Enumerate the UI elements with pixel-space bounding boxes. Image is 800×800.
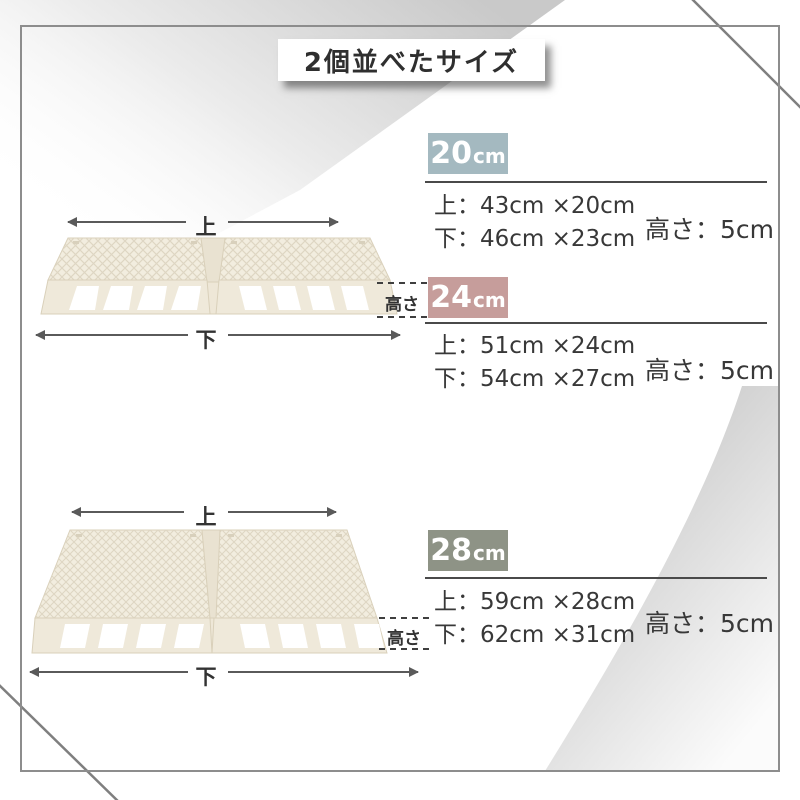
size-chip-20cm-unit: cm [473,136,506,177]
section-20cm-divider [425,181,767,183]
productA-height-label: 高さ [377,290,427,315]
size-chip-28cm-number: 28 [430,530,472,571]
section-28cm-dimensions: 上：59cm ×28cm 下：62cm ×31cm [434,586,635,652]
productB-bottom-arrow-right [228,671,418,673]
productA-height-dash-top [377,282,427,284]
productB-top-arrow-left [72,511,184,513]
size-chip-24cm-number: 24 [430,277,472,318]
section-24cm-bottom-dimension: 下：54cm ×27cm [434,363,635,396]
size-chip-20cm: 20cm [428,133,508,174]
productA-height-dash-bottom [377,316,427,318]
section-24cm-top-dimension: 上：51cm ×24cm [434,330,635,363]
productB-image [30,522,415,662]
productA-top-arrow-left [68,221,186,223]
section-24cm-dimensions: 上：51cm ×24cm 下：54cm ×27cm [434,330,635,396]
productB-height-label: 高さ [379,624,429,649]
section-20cm-height: 高さ：5cm [645,210,774,246]
section-24cm-divider [425,322,767,324]
section-28cm-bottom-dimension: 下：62cm ×31cm [434,619,635,652]
size-chip-24cm: 24cm [428,277,508,318]
productB-bottom-label: 下 [188,661,224,691]
productB-height-dash-top [379,617,429,619]
size-chip-28cm-unit: cm [473,533,506,574]
productB-height-dash-bottom [379,648,429,650]
page-title-text: 2個並べたサイズ [304,42,519,79]
section-28cm-top-dimension: 上：59cm ×28cm [434,586,635,619]
size-chip-28cm: 28cm [428,530,508,571]
productA-bottom-label: 下 [188,324,224,354]
productA-bottom-arrow-right [228,334,400,336]
section-28cm-height: 高さ：5cm [645,604,774,640]
productB-top-arrow-right [228,511,336,513]
section-28cm-divider [425,577,767,579]
section-24cm-height: 高さ：5cm [645,351,774,387]
productA-bottom-arrow-left [36,334,188,336]
section-20cm-top-dimension: 上：43cm ×20cm [434,190,635,223]
productB-bottom-arrow-left [30,671,188,673]
section-20cm-dimensions: 上：43cm ×20cm 下：46cm ×23cm [434,190,635,256]
page-title: 2個並べたサイズ [278,39,545,81]
productA-top-arrow-right [228,221,338,223]
section-20cm-bottom-dimension: 下：46cm ×23cm [434,223,635,256]
size-chip-20cm-number: 20 [430,133,472,174]
size-chip-24cm-unit: cm [473,280,506,321]
productA-image [35,232,405,324]
